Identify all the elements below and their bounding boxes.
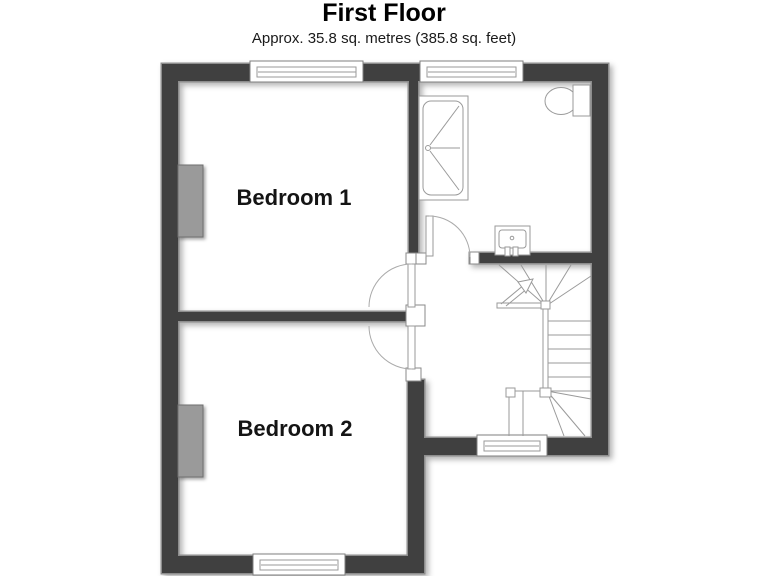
bedroom2-label: Bedroom 2: [238, 416, 353, 441]
staircase: [497, 265, 591, 436]
partition-bathroom-landing: [470, 253, 592, 263]
wash-basin-icon: [495, 226, 530, 256]
floor-plan-drawing: Bedroom 1 Bedroom 2: [0, 0, 768, 576]
doors: [369, 216, 479, 381]
newel-post: [506, 388, 515, 397]
window-bedroom2: [253, 554, 345, 575]
bathroom-fixtures: [419, 85, 590, 256]
bath-shower-icon: [419, 96, 468, 200]
walls: [162, 64, 608, 573]
toilet-icon: [545, 85, 590, 116]
window-landing: [477, 435, 547, 456]
floorplan-page: First Floor Approx. 35.8 sq. metres (385…: [0, 0, 768, 576]
window-bathroom: [420, 61, 523, 82]
stair-landing-edge: [497, 303, 546, 308]
partition-bedroom1-bathroom: [409, 81, 418, 254]
partition-bedroom1-bedroom2: [178, 312, 408, 321]
newel-post: [540, 388, 551, 397]
exterior-wall-right: [592, 64, 608, 455]
newel-post: [541, 301, 550, 309]
door-bedroom1: [369, 264, 415, 307]
exterior-wall-top: [162, 64, 608, 81]
stair-right-flight: [548, 321, 591, 377]
door-bathroom: [426, 216, 470, 257]
bedroom1-label: Bedroom 1: [237, 185, 352, 210]
exterior-wall-notch: [408, 380, 424, 573]
door-bedroom2: [369, 326, 415, 369]
window-bedroom1: [250, 61, 363, 82]
chimney-breast-bedroom2: [178, 405, 203, 477]
up-arrow-icon: [501, 279, 533, 306]
stair-bottom-winders: [547, 391, 591, 436]
exterior-wall-left: [162, 64, 178, 573]
chimney-breast-bedroom1: [178, 165, 203, 237]
stair-bottom-flight: [509, 391, 543, 436]
stair-divider: [543, 305, 548, 391]
